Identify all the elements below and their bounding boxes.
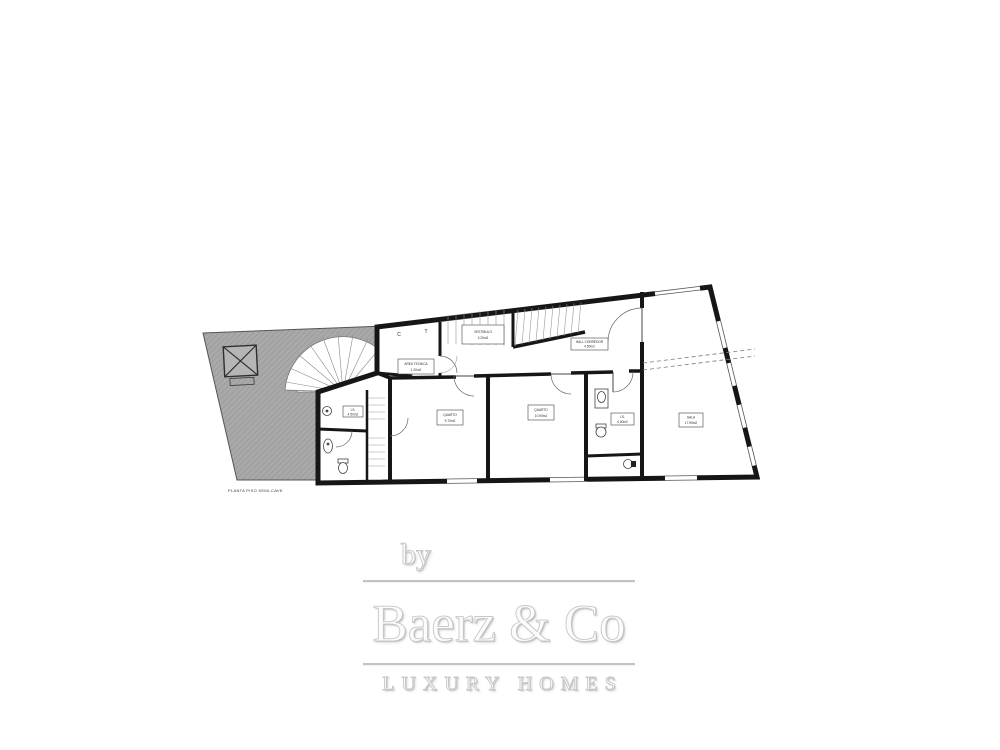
room-label: QUARTO bbox=[443, 413, 457, 417]
room-label: SALA bbox=[687, 416, 696, 420]
room-area: 10.90m2 bbox=[535, 414, 548, 418]
room-area: 17.90m2 bbox=[685, 421, 698, 425]
wall-mark-t: T bbox=[424, 329, 427, 335]
room-label: AREA TECNICA bbox=[404, 362, 428, 366]
wall-mark-c: C bbox=[397, 332, 401, 338]
floor-plan: I.S. 4.50m2 QUARTO 9.70m2 QUARTO 10.90m2… bbox=[200, 278, 770, 508]
room-label: I.S. bbox=[620, 415, 625, 419]
building-outline bbox=[318, 287, 757, 483]
listing-image: I.S. 4.50m2 QUARTO 9.70m2 QUARTO 10.90m2… bbox=[0, 0, 1000, 750]
plan-caption: PLANTA PISO SEMI-CAVE bbox=[228, 488, 283, 493]
room-area: 1.20m2 bbox=[411, 368, 422, 372]
room-label: VESTIBULO bbox=[474, 330, 492, 334]
room-area: 4.00m2 bbox=[617, 420, 628, 424]
floor-plan-drawing: I.S. 4.50m2 QUARTO 9.70m2 QUARTO 10.90m2… bbox=[200, 278, 770, 508]
brand-name: Baerz & Co bbox=[363, 583, 635, 661]
room-area: 4.50m2 bbox=[348, 412, 359, 416]
room-area: 4.50m2 bbox=[584, 345, 595, 349]
brand-prefix: by bbox=[363, 538, 635, 578]
room-label: QUARTO bbox=[534, 408, 548, 412]
room-area: 3.20m2 bbox=[478, 336, 489, 340]
room-label: HALL CORREDOR bbox=[576, 340, 604, 344]
brand-tagline: LUXURY HOMES bbox=[363, 666, 635, 698]
room-area: 9.70m2 bbox=[445, 419, 456, 423]
brand-watermark: by Baerz & Co LUXURY HOMES bbox=[363, 538, 635, 698]
